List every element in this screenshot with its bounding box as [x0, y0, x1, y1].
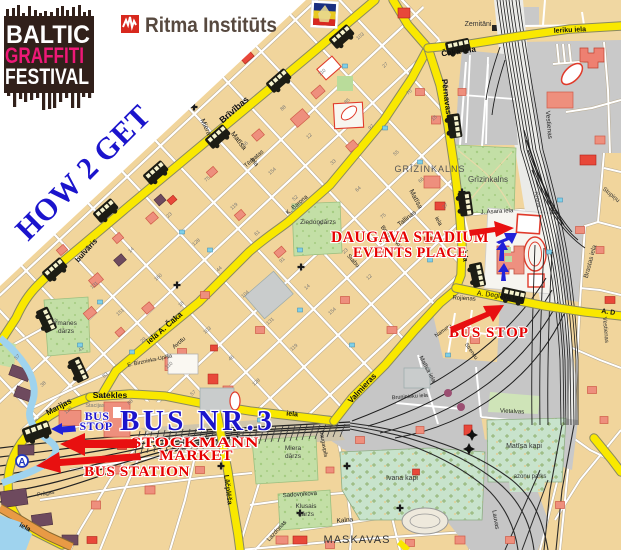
svg-text:dārzs: dārzs [285, 453, 302, 460]
svg-text:DAUGAVA STADIUM: DAUGAVA STADIUM [331, 229, 489, 246]
svg-text:Satekles: Satekles [93, 390, 128, 400]
svg-text:iela: iela [286, 411, 298, 419]
svg-text:BUS STATION: BUS STATION [84, 464, 190, 480]
svg-text:BUS NR.3: BUS NR.3 [120, 405, 275, 437]
svg-text:dārzs: dārzs [298, 511, 315, 518]
svg-text:MARKET: MARKET [159, 448, 233, 464]
svg-text:Kalna: Kalna [336, 516, 354, 524]
svg-text:rmanes: rmanes [55, 320, 77, 327]
svg-text:Zemitāni: Zemitāni [465, 21, 492, 28]
svg-text:Matīsa kapi: Matīsa kapi [506, 443, 542, 450]
svg-text:Rojienas: Rojienas [452, 295, 476, 302]
svg-text:Ziedoņdārzs: Ziedoņdārzs [300, 219, 337, 226]
svg-text:azoņu parks: azoņu parks [514, 474, 547, 480]
svg-text:Klusais: Klusais [296, 503, 318, 510]
svg-text:STOP: STOP [79, 419, 112, 433]
svg-text:GRĪZINKALNS: GRĪZINKALNS [394, 164, 465, 174]
svg-text:Grīzinkalns: Grīzinkalns [468, 175, 508, 184]
svg-text:dārzs: dārzs [58, 328, 75, 335]
svg-text:Ivana kapi: Ivana kapi [386, 475, 418, 482]
svg-text:A: A [18, 457, 25, 468]
svg-text:Ritma Institūts: Ritma Institūts [145, 14, 277, 37]
svg-text:iela: iela [549, 205, 556, 215]
svg-text:Miera: Miera [285, 445, 302, 452]
svg-text:EVENTS PLACE: EVENTS PLACE [353, 245, 467, 261]
svg-text:Vietalvas: Vietalvas [500, 408, 525, 415]
svg-text:MASKAVAS: MASKAVAS [324, 534, 391, 546]
svg-text:FESTIVAL: FESTIVAL [5, 64, 89, 89]
